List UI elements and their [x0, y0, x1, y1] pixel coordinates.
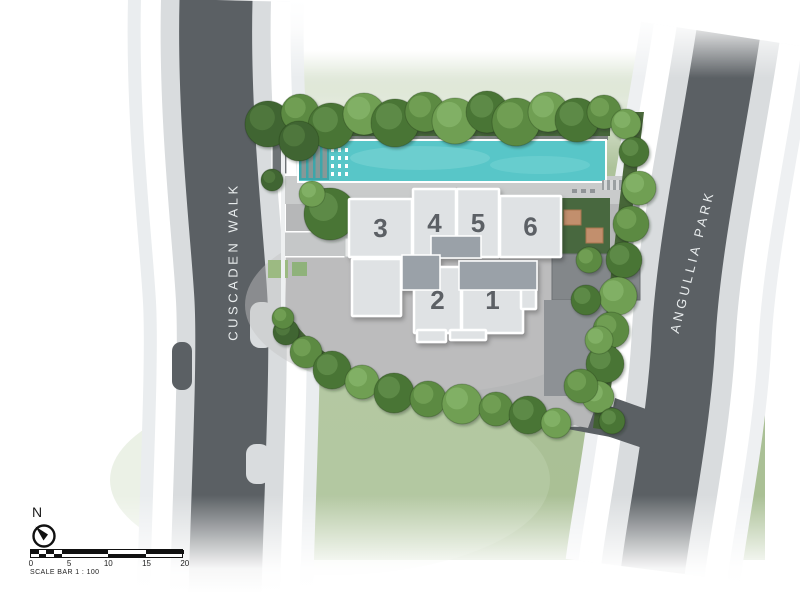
- site-plan: 345621 CUSCADEN WALK ANGULLIA PARK N 051…: [0, 0, 800, 593]
- tree: [541, 408, 571, 438]
- unit-number: 2: [430, 285, 444, 315]
- top-fade: [290, 0, 800, 78]
- tree: [279, 121, 319, 161]
- tree: [374, 373, 414, 413]
- scale-block: [146, 550, 184, 554]
- tree: [606, 242, 642, 278]
- scale-tick-label: 20: [180, 559, 189, 568]
- swimming-pool: [298, 140, 606, 182]
- scale-bar-ticks: 05101520: [30, 558, 183, 568]
- tree: [611, 109, 641, 139]
- road-angullia-park: [653, 35, 728, 570]
- scale-checker-cell: [39, 554, 47, 558]
- lawn-pad: [292, 262, 307, 276]
- daybed: [564, 210, 581, 225]
- daybed: [586, 228, 603, 243]
- tree: [599, 277, 637, 315]
- unit-number: 4: [427, 208, 442, 238]
- scale-checker-cell: [31, 550, 39, 554]
- scale-checker-cell: [54, 554, 62, 558]
- unit-number: 1: [485, 285, 499, 315]
- tree: [442, 384, 482, 424]
- scale-bar-graphic: [30, 549, 183, 558]
- scale-tick-label: 0: [29, 559, 33, 568]
- tree: [622, 171, 656, 205]
- unit-block: [352, 259, 401, 316]
- right-garden: [558, 198, 610, 256]
- tree: [299, 181, 325, 207]
- tree: [410, 381, 446, 417]
- scale-checker-cell: [62, 550, 70, 554]
- bottom-fade: [0, 495, 800, 593]
- scale-bar-caption: SCALE BAR 1 : 100: [30, 569, 200, 576]
- tree: [564, 369, 598, 403]
- tree: [261, 169, 283, 191]
- scale-tick-label: 5: [67, 559, 71, 568]
- left-fence: [281, 146, 285, 316]
- tree: [272, 307, 294, 329]
- tree: [599, 408, 625, 434]
- unit-number: 5: [471, 208, 485, 238]
- road-label-cuscaden-walk: CUSCADEN WALK: [226, 177, 241, 347]
- tree: [619, 137, 649, 167]
- north-label: N: [32, 504, 42, 520]
- scale-block: [69, 550, 107, 554]
- tree: [576, 247, 602, 273]
- unit-number: 3: [373, 213, 387, 243]
- sidewalk-buildout: [246, 444, 270, 484]
- tree: [571, 285, 601, 315]
- scale-bar: 05101520 SCALE BAR 1 : 100: [30, 549, 200, 576]
- tree: [613, 206, 649, 242]
- unit-block: [417, 330, 446, 342]
- compass-needle: [36, 527, 49, 541]
- north-compass: N: [24, 503, 74, 555]
- tree: [479, 392, 513, 426]
- unit-number: 6: [523, 212, 537, 242]
- tree: [585, 326, 613, 354]
- scale-block: [108, 554, 146, 558]
- unit-block: [450, 330, 486, 340]
- scale-tick-label: 10: [104, 559, 113, 568]
- tree: [509, 396, 547, 434]
- scale-checker-cell: [46, 550, 54, 554]
- road-widening: [172, 342, 192, 390]
- stairs: [602, 180, 622, 190]
- scale-tick-label: 15: [142, 559, 151, 568]
